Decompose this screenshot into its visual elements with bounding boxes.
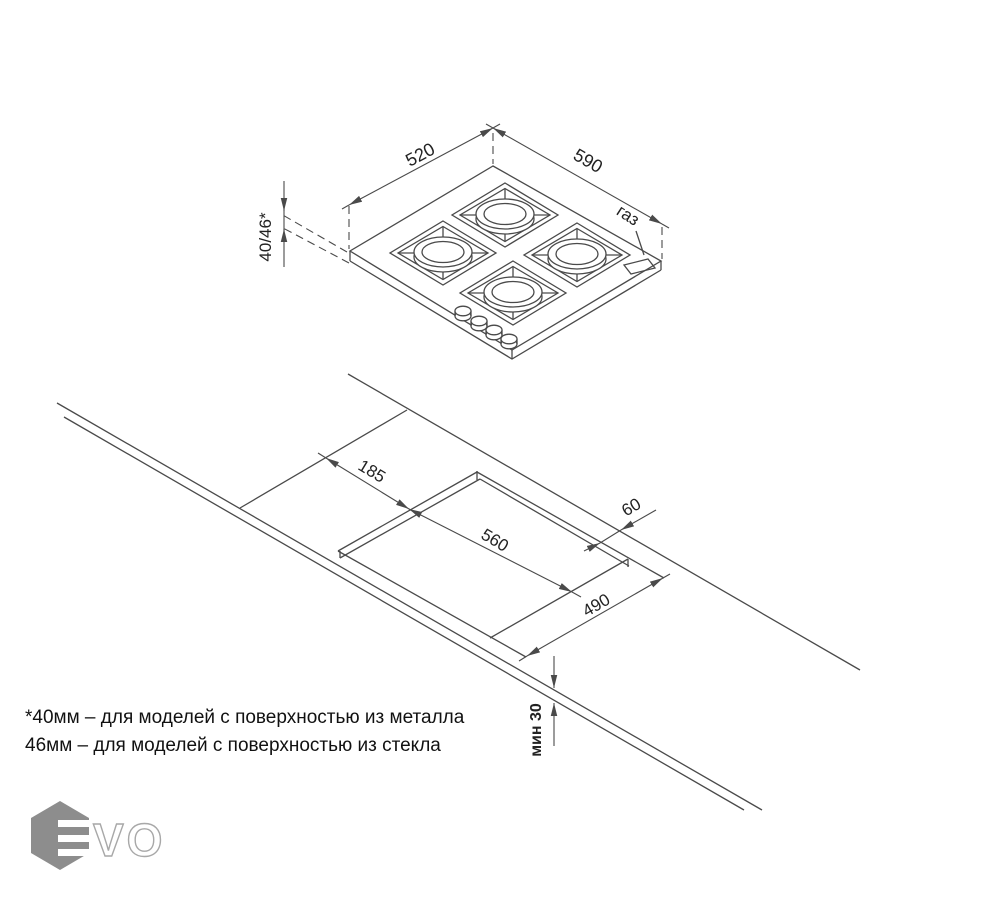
dim-60-label: 60: [618, 494, 644, 520]
burner-back: [452, 183, 558, 247]
knob: [471, 316, 487, 331]
knob: [501, 334, 517, 349]
footnote-line1: *40мм – для моделей с поверхностью из ме…: [25, 707, 465, 728]
dim-590-label: 590: [570, 145, 606, 177]
footnote-line2: 46мм – для моделей с поверхностью из сте…: [25, 735, 441, 756]
logo-e-bar: [58, 835, 97, 842]
burner-left: [390, 221, 496, 285]
hob-isometric-drawing: [281, 124, 669, 359]
dim-height-label: 40/46*: [256, 212, 275, 262]
logo-e-bar: [58, 849, 97, 856]
logo-e-bar: [58, 820, 97, 827]
dim-520-label: 520: [402, 139, 438, 171]
evo-logo: VO: [31, 801, 165, 870]
gas-label: газ: [613, 201, 643, 230]
installation-diagram-page: 520 590 40/46* газ: [0, 0, 1000, 900]
dim-185-label: 185: [355, 456, 389, 487]
burners: [390, 183, 630, 325]
gas-connection-plate: [624, 259, 655, 274]
cutout-dimension-lines: [318, 453, 670, 746]
dim-min30-label: мин 30: [528, 703, 545, 757]
dim-490-label: 490: [579, 590, 613, 621]
knob: [455, 306, 471, 321]
footnotes: *40мм – для моделей с поверхностью из ме…: [25, 707, 465, 756]
knob: [486, 325, 502, 340]
dim-560-label: 560: [478, 525, 512, 556]
gas-leader-line: [636, 231, 644, 255]
logo-letters: VO: [93, 814, 165, 866]
control-knobs: [455, 306, 517, 349]
technical-drawing: 520 590 40/46* газ: [0, 0, 1000, 900]
cutout-outline: [338, 471, 664, 657]
